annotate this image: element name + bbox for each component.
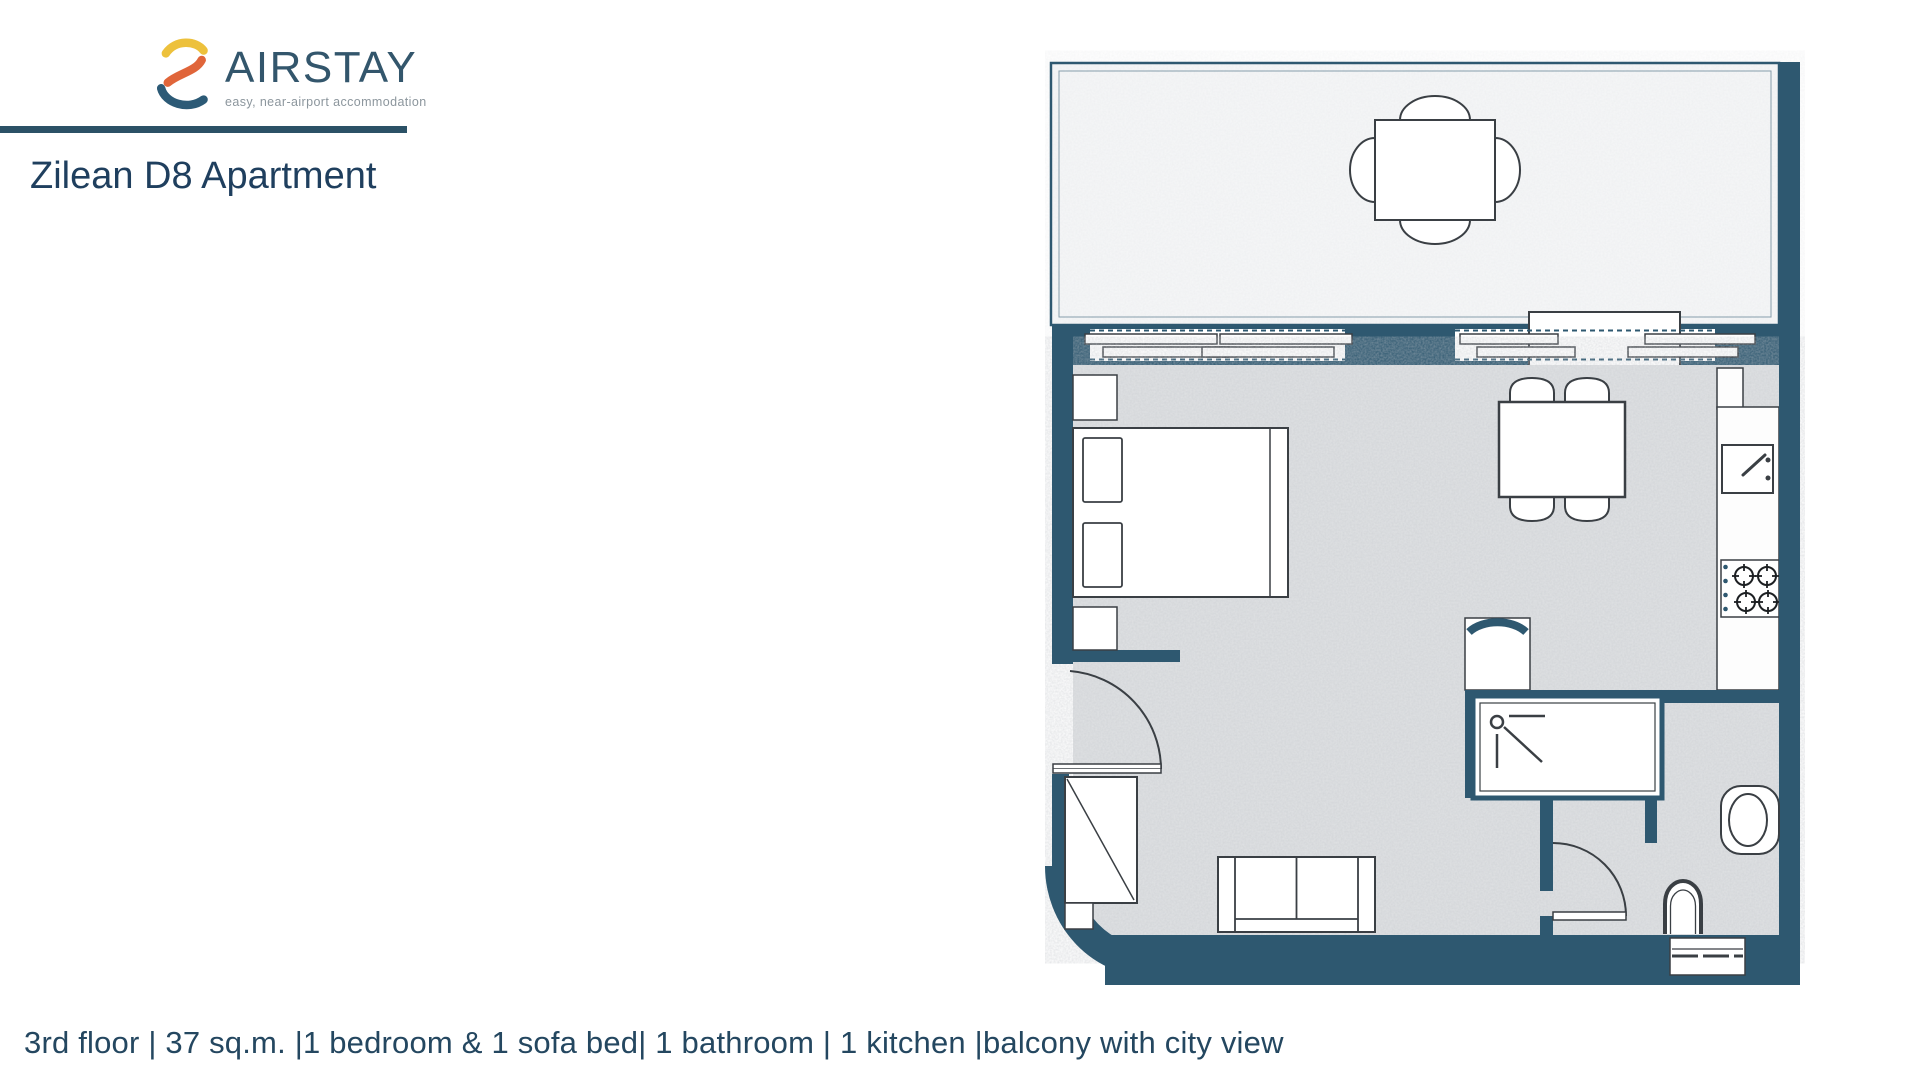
kitchen-sink [1722,445,1773,493]
brand-words: AIRSTAY easy, near-airport accommodation [225,34,427,109]
pillow [1083,523,1122,587]
stove [1721,560,1780,617]
pillow [1083,438,1122,502]
kitchen-counter [1717,368,1743,409]
kitchen [1717,368,1780,690]
outdoor-table [1375,120,1495,220]
washing-machine [1670,938,1745,975]
header-divider [0,126,407,133]
page: AIRSTAY easy, near-airport accommodation… [0,0,1919,1080]
nightstand [1073,375,1117,420]
nightstand [1073,607,1117,650]
brand-name: AIRSTAY [225,46,427,90]
sofa-bed [1218,857,1375,932]
washbasin [1721,786,1779,854]
airstay-logo-icon [147,34,213,118]
page-title: Zilean D8 Apartment [30,155,376,198]
feature-line: 3rd floor | 37 sq.m. |1 bedroom & 1 sofa… [24,1025,1284,1061]
balcony [1051,63,1779,325]
toilet [1665,881,1701,934]
shower [1473,696,1662,798]
brand-block: AIRSTAY easy, near-airport accommodation [147,34,427,118]
bed-nook-wall [1073,650,1180,662]
brand-tagline: easy, near-airport accommodation [225,95,427,109]
dining-table [1499,402,1625,497]
floorplan [1045,48,1805,988]
double-bed [1073,428,1288,597]
fridge [1465,618,1530,690]
